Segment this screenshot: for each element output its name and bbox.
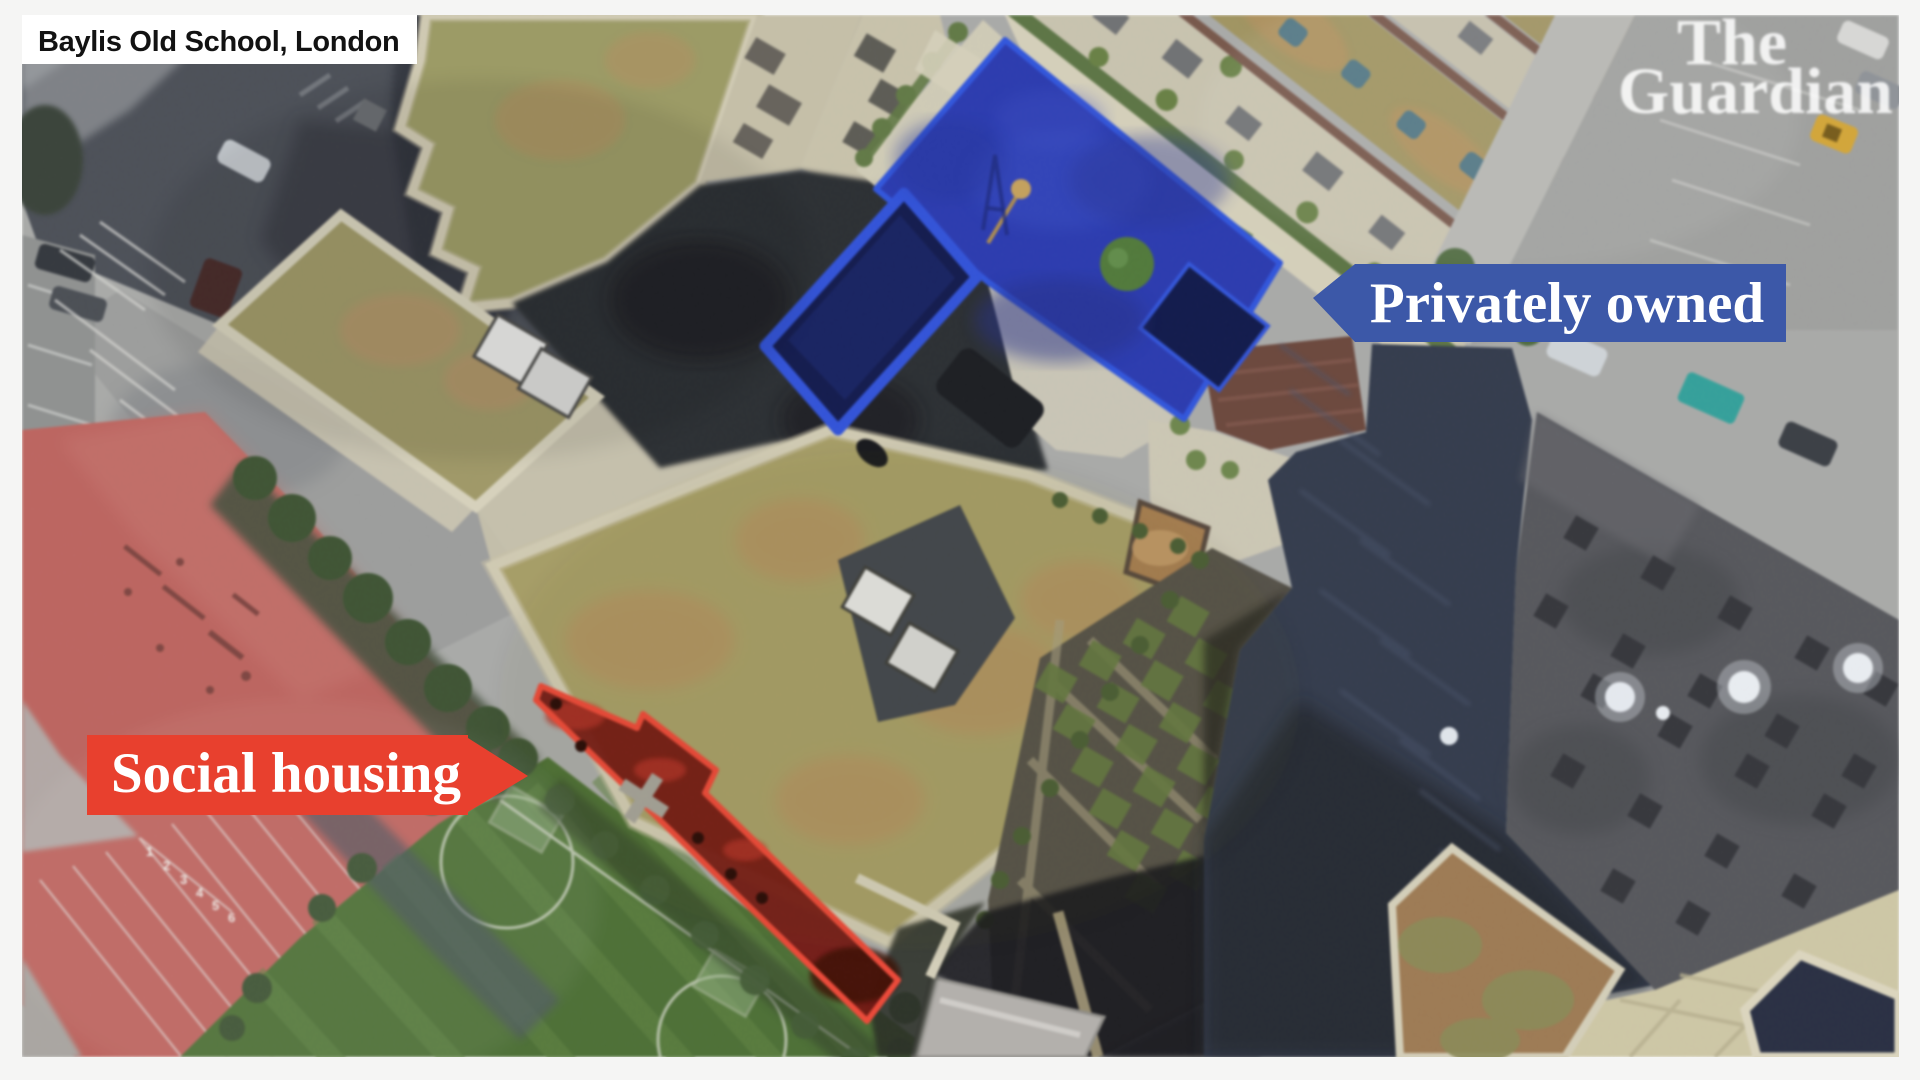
svg-text:Social housing: Social housing — [111, 742, 461, 805]
svg-text:Guardian: Guardian — [1618, 55, 1893, 128]
svg-text:Baylis Old School, London: Baylis Old School, London — [38, 26, 399, 58]
svg-text:Privately owned: Privately owned — [1370, 272, 1764, 335]
